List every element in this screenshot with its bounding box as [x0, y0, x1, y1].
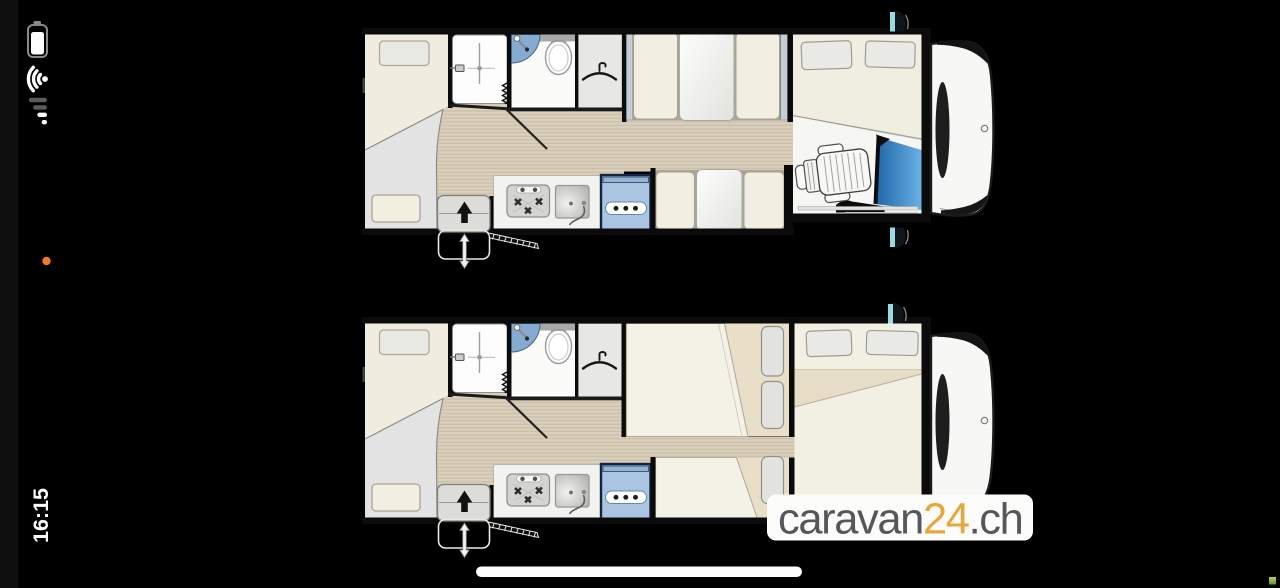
- svg-text:16:15: 16:15: [29, 488, 53, 543]
- svg-text:caravan24.ch: caravan24.ch: [778, 496, 1022, 544]
